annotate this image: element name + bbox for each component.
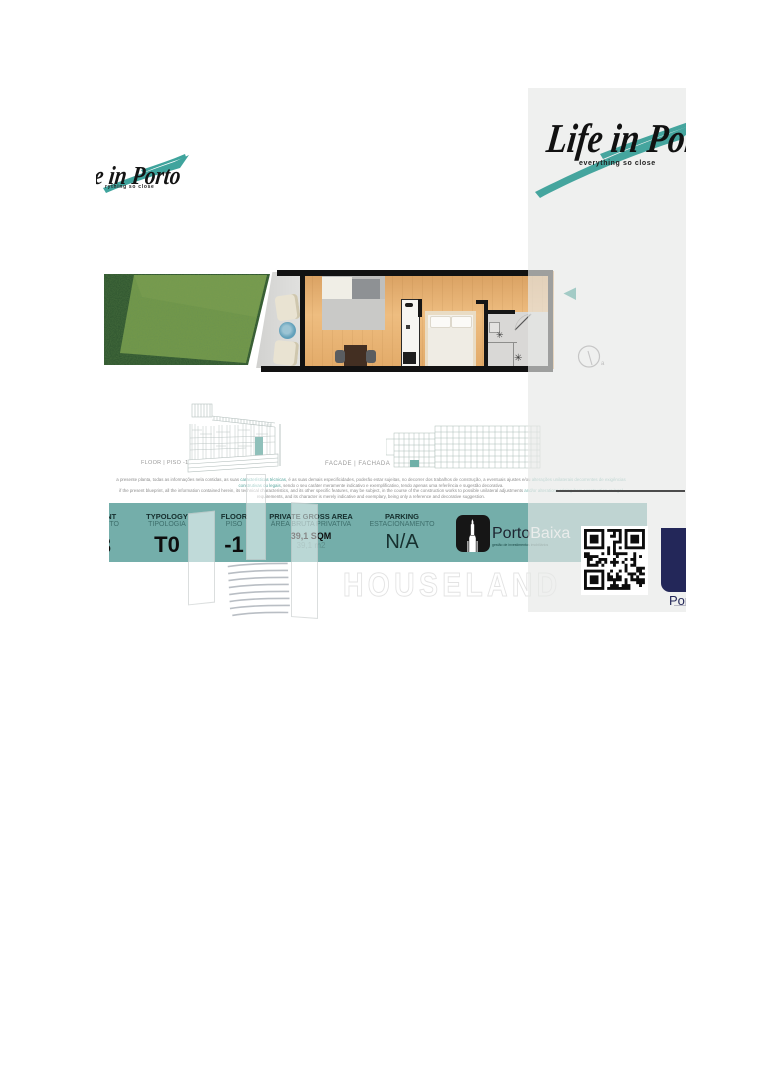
svg-text:a: a: [601, 361, 605, 367]
